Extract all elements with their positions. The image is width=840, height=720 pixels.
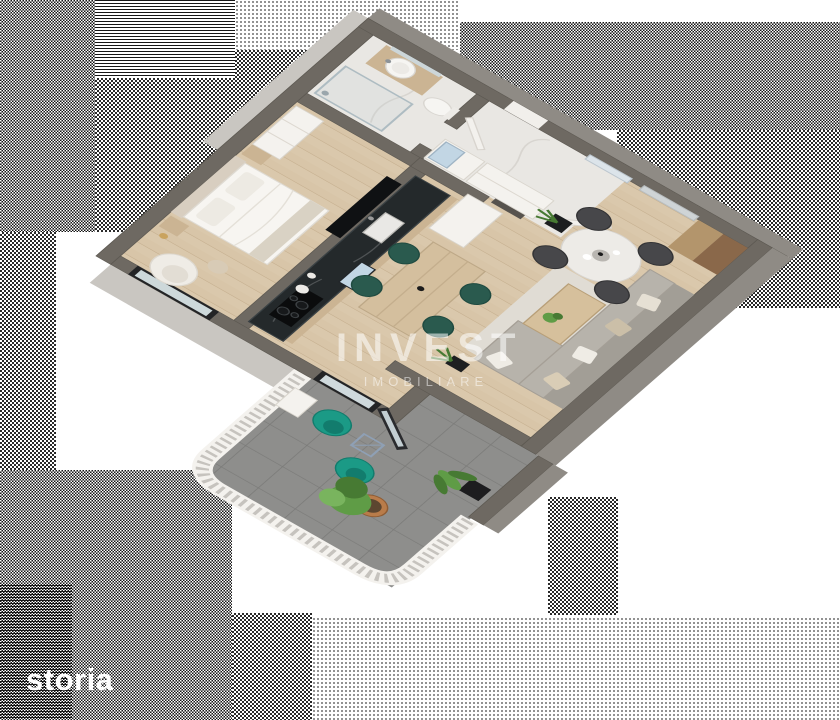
floorplan-screenshot: INVEST IMOBILIARE storia [0,0,840,720]
storia-logo: storia [26,662,113,698]
apartment-iso-group [0,0,816,603]
apartment-3d-render [0,0,840,720]
